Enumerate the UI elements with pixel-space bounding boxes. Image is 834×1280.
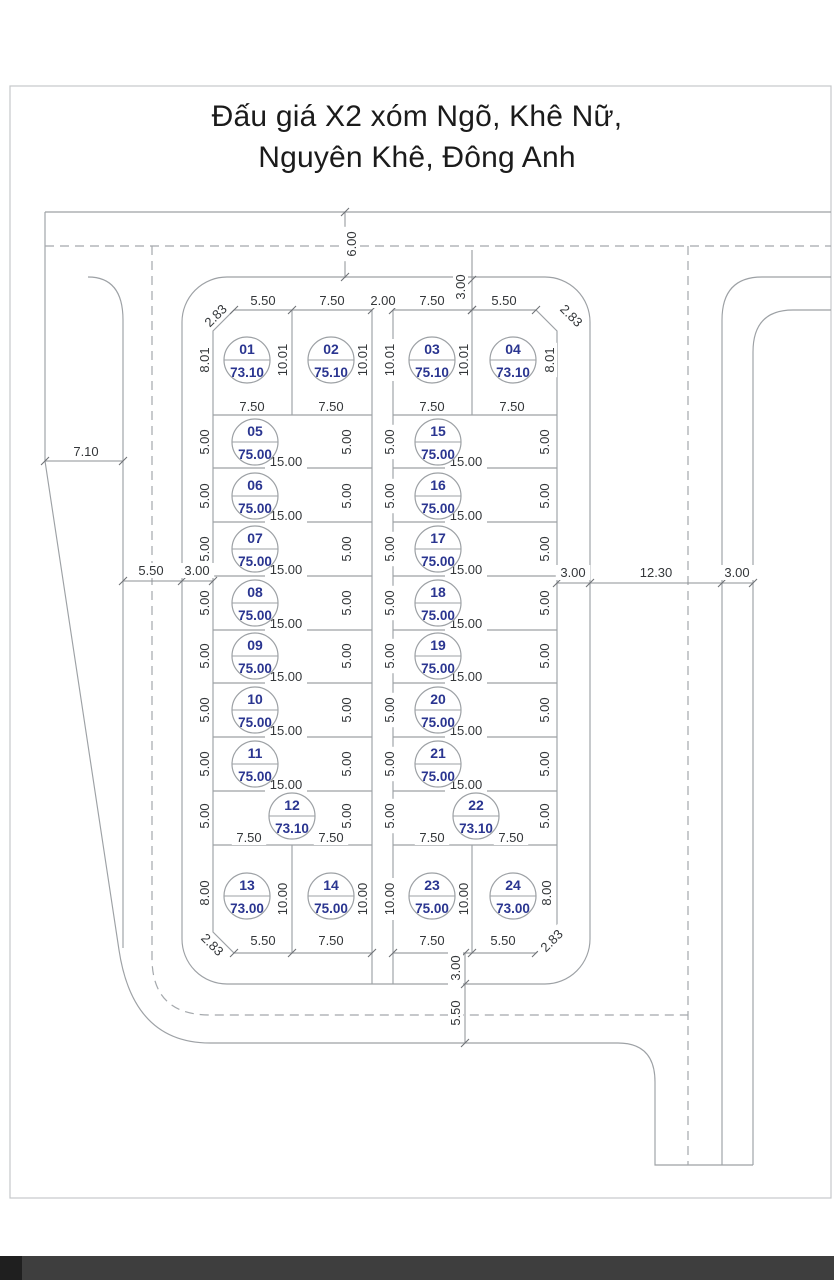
plot-label-21: 2175.00	[415, 741, 461, 787]
dimension-label: 5.00	[382, 799, 397, 833]
plot-area: 75.00	[238, 608, 272, 623]
plot-number: 06	[247, 477, 263, 493]
plot-number: 03	[424, 341, 440, 357]
dimension-label: 2.00	[366, 293, 400, 308]
dimension-label: 5.50	[487, 293, 521, 308]
svg-text:15.00: 15.00	[270, 508, 303, 523]
dimension-label: 7.50	[415, 399, 449, 414]
dimension-label: 7.50	[315, 293, 349, 308]
dimension-label: 5.00	[537, 693, 552, 727]
dimension-label: 5.00	[339, 639, 354, 673]
svg-text:5.00: 5.00	[537, 643, 552, 668]
plot-number: 13	[239, 877, 255, 893]
svg-text:15.00: 15.00	[270, 616, 303, 631]
dimension-label: 5.00	[197, 425, 212, 459]
photo-bottom-band	[0, 1256, 834, 1280]
svg-text:8.01: 8.01	[197, 347, 212, 372]
plot-label-08: 0875.00	[232, 580, 278, 626]
dimension-label: 10.01	[275, 339, 290, 381]
plot-label-10: 1075.00	[232, 687, 278, 733]
dimension-label: 10.01	[456, 339, 471, 381]
dimension-label: 2.83	[554, 298, 589, 333]
svg-text:5.00: 5.00	[197, 429, 212, 454]
plot-area: 75.00	[238, 501, 272, 516]
svg-text:5.00: 5.00	[382, 751, 397, 776]
svg-text:5.00: 5.00	[382, 483, 397, 508]
dimension-label: 5.00	[537, 799, 552, 833]
svg-text:7.50: 7.50	[239, 399, 264, 414]
plot-label-06: 0675.00	[232, 473, 278, 519]
svg-text:3.00: 3.00	[448, 955, 463, 980]
dimension-lines	[45, 212, 753, 1043]
dimension-ticks	[41, 208, 757, 1047]
svg-text:7.50: 7.50	[319, 293, 344, 308]
svg-text:7.50: 7.50	[236, 830, 261, 845]
plot-number: 19	[430, 637, 446, 653]
dimension-label: 5.50	[486, 933, 520, 948]
plot-number: 09	[247, 637, 263, 653]
svg-text:5.50: 5.50	[490, 933, 515, 948]
dimension-label: 12.30	[635, 565, 677, 580]
dimension-label: 6.00	[344, 227, 359, 261]
plot-area: 75.10	[314, 365, 348, 380]
dimension-label: 5.00	[382, 747, 397, 781]
svg-text:10.01: 10.01	[275, 344, 290, 377]
photo-bottom-band-corner	[0, 1256, 22, 1280]
svg-text:7.50: 7.50	[498, 830, 523, 845]
plot-number: 07	[247, 530, 263, 546]
svg-text:15.00: 15.00	[270, 669, 303, 684]
svg-text:5.00: 5.00	[537, 536, 552, 561]
plot-number: 20	[430, 691, 446, 707]
svg-text:5.00: 5.00	[537, 429, 552, 454]
plot-label-04: 0473.10	[490, 337, 536, 383]
plot-area: 75.00	[238, 769, 272, 784]
plot-area: 75.10	[415, 365, 449, 380]
svg-text:5.00: 5.00	[382, 803, 397, 828]
plot-area: 75.00	[421, 769, 455, 784]
plot-number: 24	[505, 877, 521, 893]
dimension-label: 10.00	[456, 878, 471, 920]
plot-label-13: 1373.00	[224, 873, 270, 919]
site-plan-drawing: 6.005.507.502.007.505.503.002.832.838.01…	[0, 0, 834, 1280]
svg-text:5.50: 5.50	[250, 293, 275, 308]
dimension-label: 7.50	[415, 830, 449, 845]
plot-label-18: 1875.00	[415, 580, 461, 626]
dimension-label: 3.00	[720, 565, 754, 580]
svg-text:5.00: 5.00	[382, 429, 397, 454]
dimension-label: 5.00	[197, 799, 212, 833]
plot-area: 75.00	[238, 447, 272, 462]
svg-text:5.00: 5.00	[339, 751, 354, 776]
plot-label-03: 0375.10	[409, 337, 455, 383]
dimension-label: 10.01	[382, 339, 397, 381]
svg-text:5.00: 5.00	[197, 483, 212, 508]
svg-text:3.00: 3.00	[560, 565, 585, 580]
plot-label-16: 1675.00	[415, 473, 461, 519]
plot-number: 23	[424, 877, 440, 893]
dimension-label: 5.00	[197, 479, 212, 513]
svg-text:8.01: 8.01	[542, 347, 557, 372]
svg-text:5.00: 5.00	[382, 697, 397, 722]
dimension-label: 5.00	[197, 693, 212, 727]
svg-text:10.00: 10.00	[456, 883, 471, 916]
svg-text:3.00: 3.00	[453, 274, 468, 299]
svg-text:5.00: 5.00	[197, 697, 212, 722]
svg-text:5.00: 5.00	[339, 803, 354, 828]
plot-label-11: 1175.00	[232, 741, 278, 787]
dimension-label: 5.00	[382, 586, 397, 620]
svg-text:7.50: 7.50	[419, 293, 444, 308]
plot-area: 75.00	[421, 554, 455, 569]
dimension-label: 5.50	[246, 933, 280, 948]
plot-area: 75.00	[421, 661, 455, 676]
dimension-label: 10.01	[355, 339, 370, 381]
svg-text:2.00: 2.00	[370, 293, 395, 308]
plot-label-20: 2075.00	[415, 687, 461, 733]
plot-label-01: 0173.10	[224, 337, 270, 383]
svg-text:3.00: 3.00	[724, 565, 749, 580]
plot-number: 04	[505, 341, 521, 357]
plot-label-19: 1975.00	[415, 633, 461, 679]
plot-number: 11	[248, 745, 263, 761]
dimension-label: 5.00	[382, 425, 397, 459]
plot-label-22: 2273.10	[453, 793, 499, 839]
scanned-plan-page: Đấu giá X2 xóm Ngõ, Khê Nữ, Nguyên Khê, …	[0, 0, 834, 1280]
dimension-label: 5.00	[382, 693, 397, 727]
plot-area: 75.00	[421, 608, 455, 623]
svg-text:7.50: 7.50	[499, 399, 524, 414]
svg-text:5.00: 5.00	[537, 590, 552, 615]
plot-area: 75.00	[238, 661, 272, 676]
svg-text:5.50: 5.50	[491, 293, 516, 308]
svg-text:5.00: 5.00	[197, 590, 212, 615]
dimension-label: 5.00	[537, 747, 552, 781]
svg-text:5.00: 5.00	[339, 697, 354, 722]
svg-text:5.00: 5.00	[197, 751, 212, 776]
plot-number: 17	[430, 530, 446, 546]
plot-area: 73.10	[275, 821, 309, 836]
plot-number: 12	[284, 797, 300, 813]
svg-text:5.00: 5.00	[197, 643, 212, 668]
plot-label-02: 0275.10	[308, 337, 354, 383]
dimension-label: 5.00	[537, 639, 552, 673]
svg-text:5.00: 5.00	[382, 536, 397, 561]
svg-text:5.50: 5.50	[250, 933, 275, 948]
dimension-label: 5.00	[197, 747, 212, 781]
dimension-label: 7.50	[314, 399, 348, 414]
svg-text:10.01: 10.01	[382, 344, 397, 377]
plot-number: 02	[323, 341, 339, 357]
dimension-label: 5.00	[537, 479, 552, 513]
svg-text:5.00: 5.00	[339, 483, 354, 508]
svg-text:5.00: 5.00	[537, 483, 552, 508]
dimension-label: 7.50	[235, 399, 269, 414]
dimension-label: 5.00	[339, 425, 354, 459]
svg-text:10.01: 10.01	[355, 344, 370, 377]
plot-area: 73.10	[230, 365, 264, 380]
dimension-label: 3.00	[453, 270, 468, 304]
dimension-label: 7.50	[415, 933, 449, 948]
svg-text:8.00: 8.00	[539, 880, 554, 905]
svg-text:7.10: 7.10	[73, 444, 98, 459]
dimension-label: 5.00	[339, 586, 354, 620]
svg-text:3.00: 3.00	[184, 563, 209, 578]
dimension-label: 5.00	[382, 532, 397, 566]
dimension-label: 7.50	[495, 399, 529, 414]
plot-area: 75.00	[421, 715, 455, 730]
plot-area: 73.10	[459, 821, 493, 836]
plot-number: 21	[430, 745, 446, 761]
svg-text:5.00: 5.00	[339, 590, 354, 615]
svg-text:5.00: 5.00	[339, 536, 354, 561]
plot-number: 15	[430, 423, 446, 439]
svg-text:15.00: 15.00	[270, 454, 303, 469]
dimension-label: 8.01	[197, 343, 212, 377]
svg-text:7.50: 7.50	[419, 830, 444, 845]
plot-area: 75.00	[421, 501, 455, 516]
svg-text:7.50: 7.50	[318, 933, 343, 948]
plot-label-09: 0975.00	[232, 633, 278, 679]
dimension-label: 10.00	[275, 878, 290, 920]
dimension-label: 5.00	[339, 747, 354, 781]
svg-text:10.00: 10.00	[355, 883, 370, 916]
dimension-label: 5.00	[197, 639, 212, 673]
svg-text:5.50: 5.50	[448, 1000, 463, 1025]
svg-text:7.50: 7.50	[318, 399, 343, 414]
dimension-label: 5.00	[537, 425, 552, 459]
dimension-label: 8.01	[542, 343, 557, 377]
dimension-label: 5.00	[537, 532, 552, 566]
dimension-label: 5.50	[134, 563, 168, 578]
svg-text:5.50: 5.50	[138, 563, 163, 578]
svg-text:8.00: 8.00	[197, 880, 212, 905]
dimension-label: 10.00	[355, 878, 370, 920]
plot-number: 10	[247, 691, 263, 707]
dimension-label: 5.00	[339, 479, 354, 513]
plot-label-15: 1575.00	[415, 419, 461, 465]
dimension-label: 5.00	[339, 693, 354, 727]
svg-text:15.00: 15.00	[270, 777, 303, 792]
dimension-label: 5.00	[197, 532, 212, 566]
plot-label-24: 2473.00	[490, 873, 536, 919]
plot-label-12: 1273.10	[269, 793, 315, 839]
svg-text:5.00: 5.00	[339, 643, 354, 668]
svg-text:5.00: 5.00	[537, 751, 552, 776]
plot-area: 75.00	[421, 447, 455, 462]
dimension-label: 7.50	[232, 830, 266, 845]
dimension-label: 5.00	[339, 532, 354, 566]
dimension-label: 5.00	[382, 639, 397, 673]
dimension-labels: 6.005.507.502.007.505.503.002.832.838.01…	[69, 227, 754, 1030]
dimension-label: 5.00	[382, 479, 397, 513]
svg-text:15.00: 15.00	[270, 723, 303, 738]
plot-label-05: 0575.00	[232, 419, 278, 465]
plot-label-17: 1775.00	[415, 526, 461, 572]
dimension-label: 7.50	[314, 933, 348, 948]
dimension-label: 3.00	[180, 563, 214, 578]
svg-text:6.00: 6.00	[344, 231, 359, 256]
dimension-label: 8.00	[197, 876, 212, 910]
plot-number: 22	[468, 797, 484, 813]
svg-text:5.00: 5.00	[339, 429, 354, 454]
dimension-label: 3.00	[448, 951, 463, 985]
plot-area: 73.10	[496, 365, 530, 380]
dimension-label: 7.10	[69, 444, 103, 459]
plot-area: 75.00	[314, 901, 348, 916]
plot-area: 73.00	[230, 901, 264, 916]
svg-text:5.00: 5.00	[537, 697, 552, 722]
svg-text:10.01: 10.01	[456, 344, 471, 377]
dimension-label: 5.00	[339, 799, 354, 833]
plot-label-07: 0775.00	[232, 526, 278, 572]
dimension-label: 7.50	[415, 293, 449, 308]
plot-area: 75.00	[238, 715, 272, 730]
plot-label-14: 1475.00	[308, 873, 354, 919]
svg-text:5.00: 5.00	[382, 643, 397, 668]
svg-text:7.50: 7.50	[419, 933, 444, 948]
dimension-label: 2.83	[534, 923, 569, 958]
dimension-label: 7.50	[494, 830, 528, 845]
dimension-label: 5.00	[537, 586, 552, 620]
dimension-label: 3.00	[556, 565, 590, 580]
svg-text:5.00: 5.00	[537, 803, 552, 828]
dimension-label: 7.50	[314, 830, 348, 845]
dimension-label: 5.50	[448, 996, 463, 1030]
plot-number: 16	[430, 477, 446, 493]
svg-text:5.00: 5.00	[382, 590, 397, 615]
plot-number: 01	[239, 341, 255, 357]
svg-text:7.50: 7.50	[419, 399, 444, 414]
svg-text:7.50: 7.50	[318, 830, 343, 845]
dimension-label: 8.00	[539, 876, 554, 910]
dimension-label: 10.00	[382, 878, 397, 920]
dimension-label: 2.83	[195, 927, 230, 962]
svg-text:10.00: 10.00	[275, 883, 290, 916]
svg-text:5.00: 5.00	[197, 536, 212, 561]
plot-number: 14	[323, 877, 339, 893]
svg-text:12.30: 12.30	[640, 565, 673, 580]
plot-area: 75.00	[238, 554, 272, 569]
svg-text:10.00: 10.00	[382, 883, 397, 916]
plot-number: 05	[247, 423, 263, 439]
plot-area: 75.00	[415, 901, 449, 916]
plot-number: 18	[430, 584, 446, 600]
dimension-label: 5.50	[246, 293, 280, 308]
svg-text:15.00: 15.00	[270, 562, 303, 577]
plot-number: 08	[247, 584, 263, 600]
dimension-label: 5.00	[197, 586, 212, 620]
svg-text:5.00: 5.00	[197, 803, 212, 828]
plot-label-23: 2375.00	[409, 873, 455, 919]
plot-area: 73.00	[496, 901, 530, 916]
